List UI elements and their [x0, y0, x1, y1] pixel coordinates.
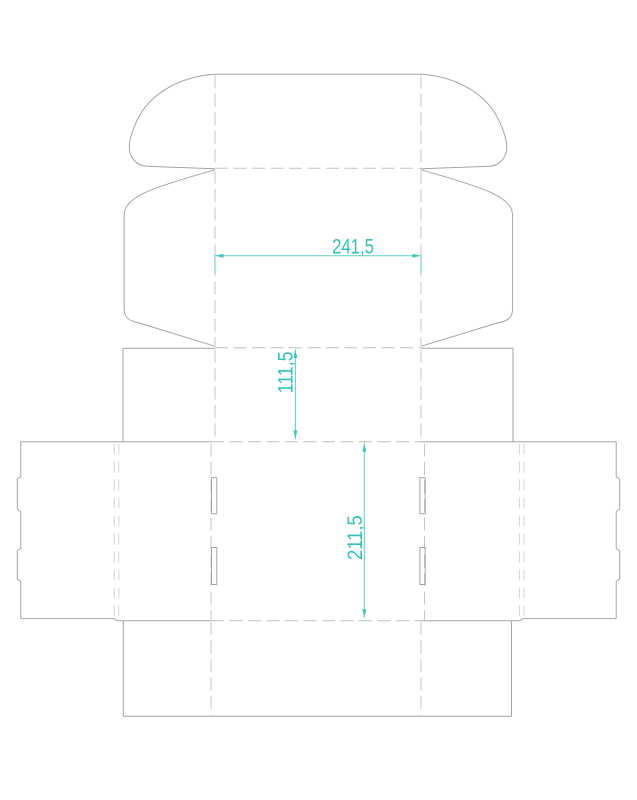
svg-text:111,5: 111,5	[275, 351, 298, 393]
svg-text:241,5: 241,5	[332, 235, 374, 258]
svg-text:211,5: 211,5	[344, 515, 367, 560]
